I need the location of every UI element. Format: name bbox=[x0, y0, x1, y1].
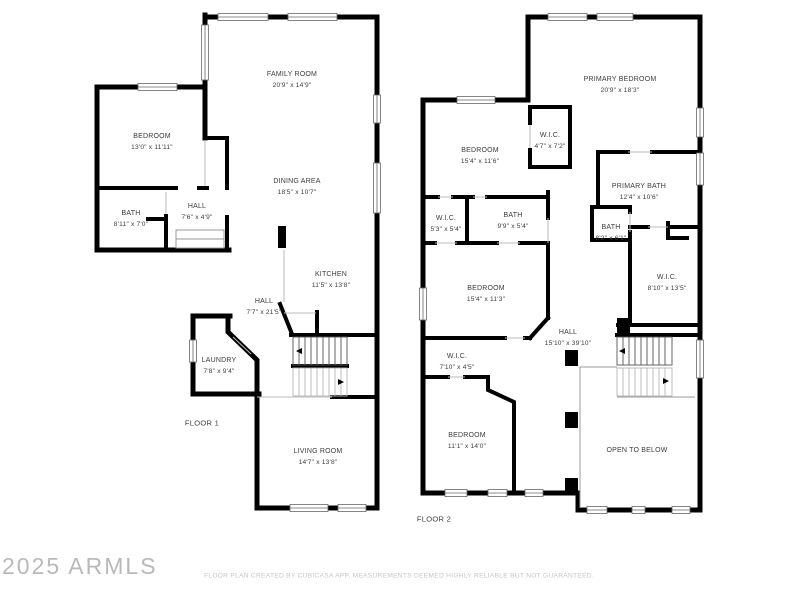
room-label-wic-small: W.I.C. 5'3" x 5'4" bbox=[430, 214, 461, 234]
room-label-bedroom-f2a: BEDROOM 15'4" x 11'6" bbox=[461, 146, 499, 166]
disclaimer-text: FLOOR PLAN CREATED BY CUBICASA APP. MEAS… bbox=[204, 573, 594, 580]
room-label-primary-bedroom: PRIMARY BEDROOM 20'9" x 18'3" bbox=[584, 75, 657, 95]
room-label-bath-f2b: BATH 8'2" x 6'1" bbox=[595, 223, 626, 243]
room-label-hall-f1b: HALL 7'7" x 21'5" bbox=[247, 297, 282, 317]
floor2-label: FLOOR 2 bbox=[417, 515, 451, 524]
room-label-hall-f2: HALL 15'10" x 39'10" bbox=[545, 328, 592, 348]
floor1-wall-piers bbox=[278, 226, 286, 248]
room-label-family-room: FAMILY ROOM 20'9" x 14'9" bbox=[267, 70, 317, 90]
floor2-reference-lines bbox=[580, 367, 695, 508]
room-label-bath-f2a: BATH 9'9" x 5'4" bbox=[497, 211, 528, 231]
room-label-primary-bath: PRIMARY BATH 12'4" x 10'6" bbox=[612, 182, 666, 202]
room-label-bedroom-f1: BEDROOM 13'0" x 11'11" bbox=[131, 132, 173, 152]
room-label-wic-primary: W.I.C. 4'7" x 7'2" bbox=[534, 131, 565, 151]
room-label-laundry: LAUNDRY 7'8" x 9'4" bbox=[202, 356, 237, 376]
armls-watermark: 2025 ARMLS bbox=[2, 553, 158, 580]
room-label-dining-area: DINING AREA 18'5" x 10'7" bbox=[273, 177, 320, 197]
room-label-hall-f1a: HALL 7'6" x 4'9" bbox=[181, 202, 212, 222]
room-label-bath-f1: BATH 8'11" x 7'0" bbox=[114, 209, 148, 229]
floor-plan-drawing bbox=[0, 0, 800, 600]
room-label-bedroom-f2b: BEDROOM 15'4" x 11'3" bbox=[467, 284, 505, 304]
floor2-stairs bbox=[617, 337, 672, 396]
room-label-open-to-below: OPEN TO BELOW bbox=[606, 446, 667, 457]
room-label-wic-bedroom: W.I.C. 7'10" x 4'5" bbox=[440, 352, 475, 372]
floor-plan-page: FAMILY ROOM 20'9" x 14'9" BEDROOM 13'0" … bbox=[0, 0, 800, 600]
room-label-bedroom-f2c: BEDROOM 11'1" x 14'0" bbox=[448, 431, 486, 451]
room-label-living-room: LIVING ROOM 14'7" x 13'8" bbox=[294, 447, 343, 467]
room-label-wic-large: W.I.C. 8'10" x 13'5" bbox=[648, 273, 687, 293]
floor1-label: FLOOR 1 bbox=[185, 419, 219, 428]
room-label-kitchen: KITCHEN 11'5" x 13'8" bbox=[312, 270, 350, 290]
